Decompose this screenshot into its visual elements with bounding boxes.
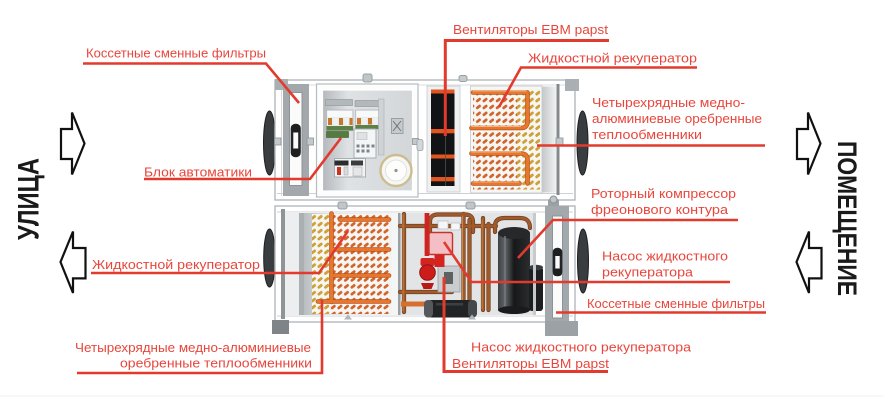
svg-text:Насос жидкостного рекуператора: Насос жидкостного рекуператора (471, 340, 692, 355)
svg-text:оребренные теплообменники: оребренные теплообменники (120, 356, 312, 371)
svg-text:Блок автоматики: Блок автоматики (144, 165, 252, 180)
svg-text:Коссетные сменные фильтры: Коссетные сменные фильтры (587, 296, 765, 311)
svg-text:УЛИЦА: УЛИЦА (13, 158, 46, 240)
svg-text:Вентиляторы EBM papst: Вентиляторы EBM papst (453, 22, 608, 37)
svg-text:Четырехрядные медно-алюминиевы: Четырехрядные медно-алюминиевые (75, 340, 311, 355)
svg-text:Коссетные сменные фильтры: Коссетные сменные фильтры (86, 46, 266, 61)
svg-text:фреонового контура: фреонового контура (591, 202, 729, 217)
svg-text:Насос жидкостного: Насос жидкостного (602, 249, 728, 264)
svg-text:ПОМЕЩЕНИЕ: ПОМЕЩЕНИЕ (832, 141, 862, 296)
svg-text:Роторный компрессор: Роторный компрессор (591, 186, 736, 201)
svg-text:Четырехрядные медно-: Четырехрядные медно- (592, 95, 745, 110)
svg-text:Жидкостной рекуператор: Жидкостной рекуператор (528, 51, 697, 66)
svg-text:рекуператора: рекуператора (602, 265, 694, 280)
svg-text:Вентиляторы EBM papst: Вентиляторы EBM papst (452, 356, 609, 371)
svg-text:теплообменники: теплообменники (592, 127, 702, 142)
svg-text:Жидкостной рекуператор: Жидкостной рекуператор (92, 257, 260, 272)
svg-text:алюминиевые оребренные: алюминиевые оребренные (592, 111, 762, 126)
